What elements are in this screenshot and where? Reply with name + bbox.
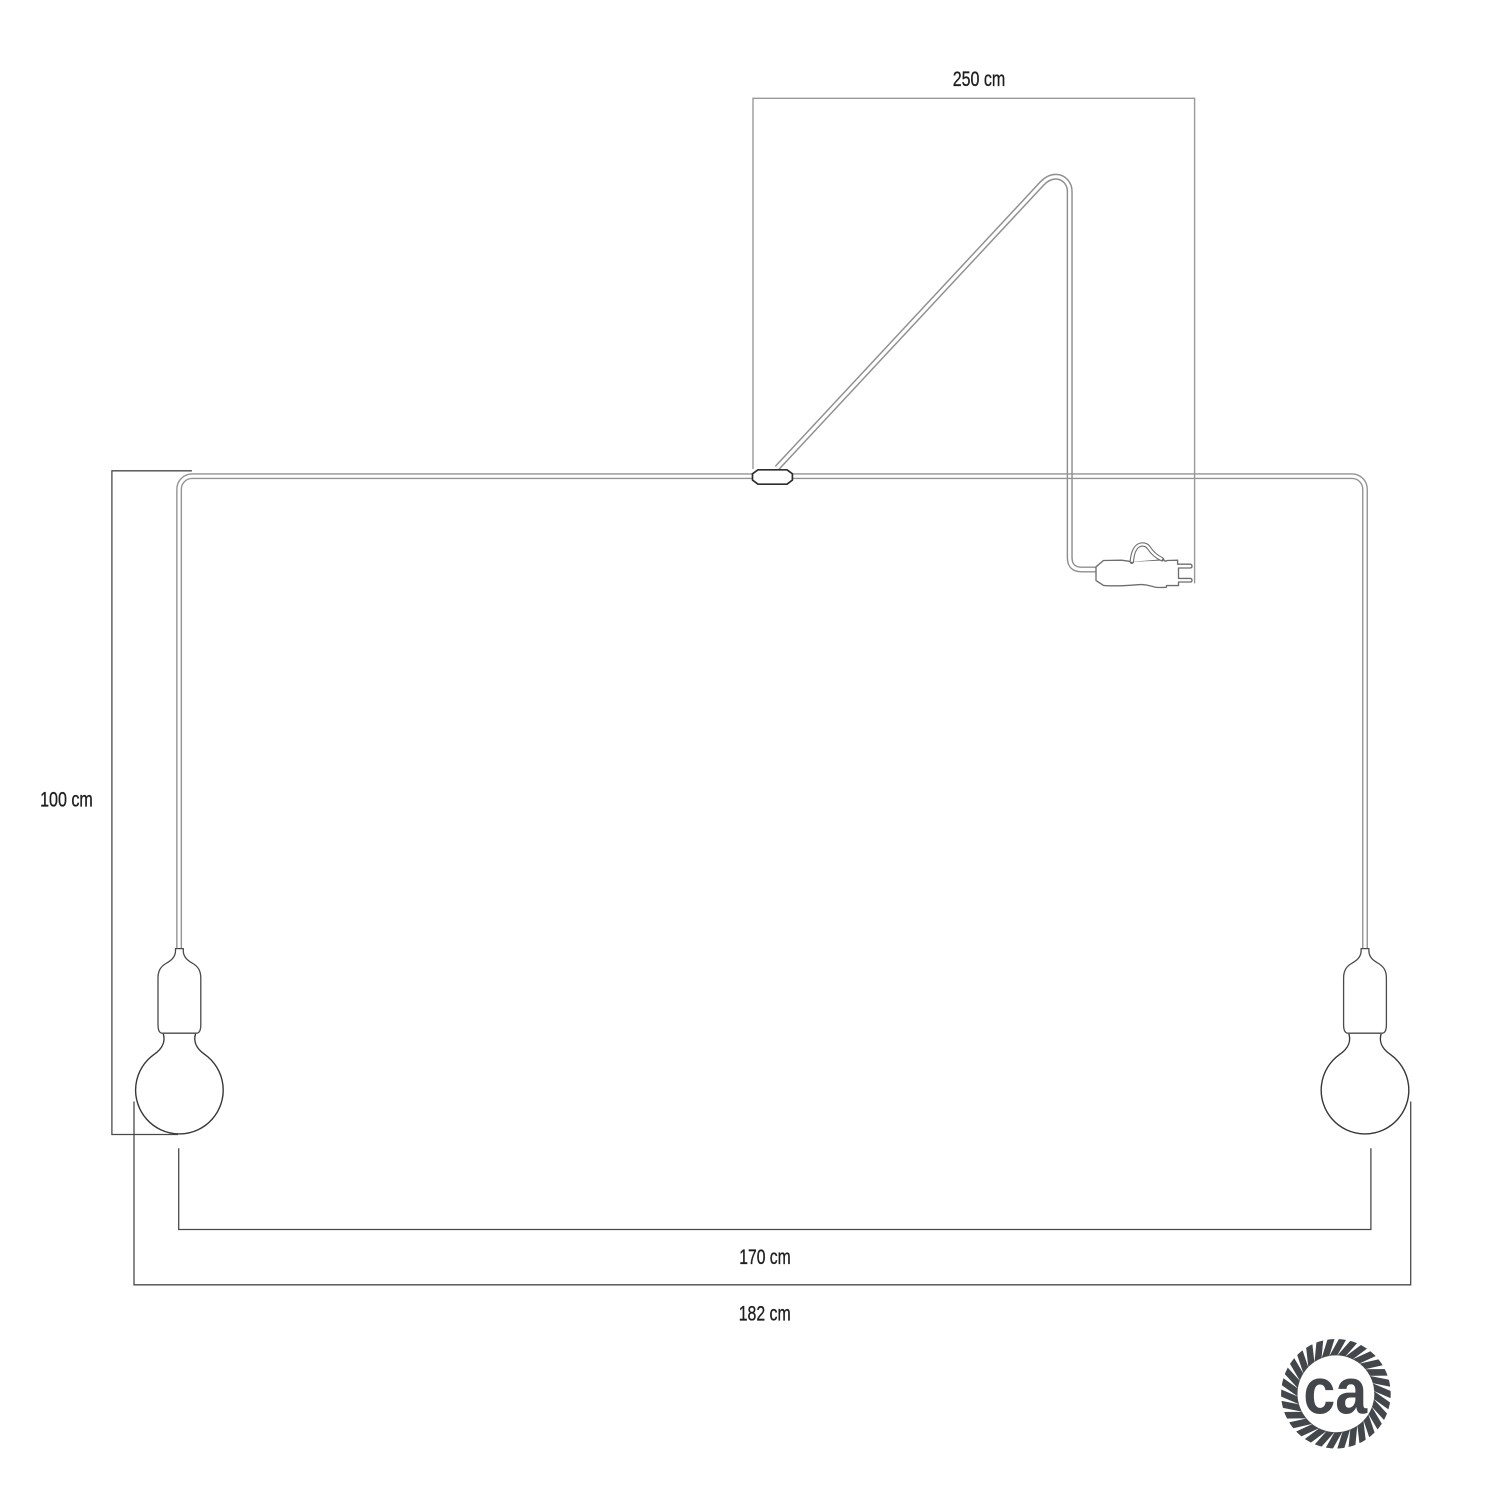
svg-text:100 cm: 100 cm [40,787,93,811]
svg-text:182 cm: 182 cm [739,1302,791,1326]
svg-text:250 cm: 250 cm [953,67,1006,91]
svg-text:170 cm: 170 cm [739,1245,790,1269]
svg-text:ca: ca [1303,1356,1368,1428]
